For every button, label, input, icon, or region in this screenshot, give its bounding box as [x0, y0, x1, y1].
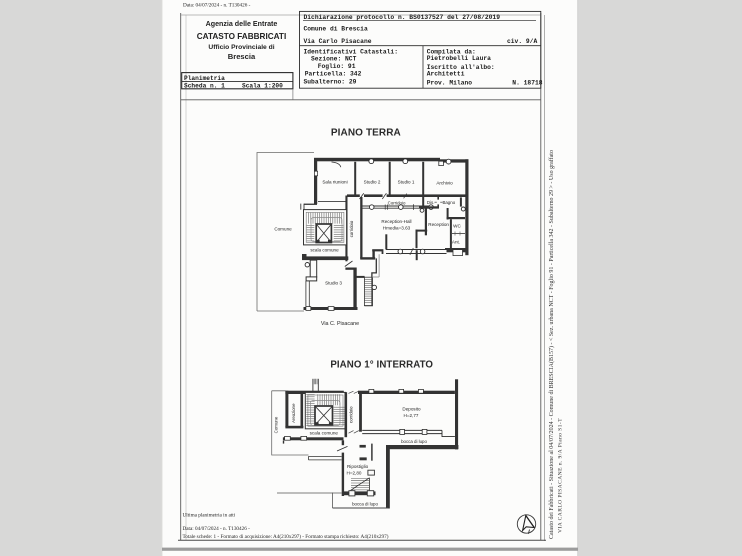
- svg-text:bocca di lupo: bocca di lupo: [401, 439, 427, 444]
- svg-text:CATASTO FABBRICATI: CATASTO FABBRICATI: [197, 32, 286, 41]
- svg-text:Ufficio Provinciale di: Ufficio Provinciale di: [208, 44, 274, 51]
- svg-text:Totale schede: 1 - Formato di: Totale schede: 1 - Formato di acquisizio…: [183, 533, 389, 540]
- svg-text:Ultima planimetria in atti: Ultima planimetria in atti: [183, 512, 236, 518]
- svg-text:Areazione: Areazione: [291, 403, 296, 423]
- svg-text:Reception-Hall: Reception-Hall: [381, 219, 411, 224]
- svg-text:N. 18718: N. 18718: [512, 80, 542, 87]
- svg-text:Dichiarazione protocollo n. BS: Dichiarazione protocollo n. BS0137527 de…: [304, 14, 501, 21]
- svg-text:Bagno: Bagno: [442, 200, 455, 205]
- svg-text:Foglio: 91: Foglio: 91: [318, 63, 356, 70]
- svg-text:corridoio: corridoio: [349, 406, 354, 423]
- svg-text:PIANO TERRA: PIANO TERRA: [331, 127, 401, 138]
- svg-text:VIA CARLO PISACANE n. 9/A Pian: VIA CARLO PISACANE n. 9/A Piano S1-T: [558, 418, 564, 533]
- svg-text:civ. 9/A: civ. 9/A: [507, 38, 537, 45]
- svg-text:Dis.: Dis.: [427, 200, 435, 205]
- svg-text:H=2,80: H=2,80: [347, 471, 362, 476]
- svg-text:Comune: Comune: [274, 416, 279, 433]
- svg-text:WC: WC: [453, 224, 461, 229]
- svg-text:Ant.: Ant.: [452, 240, 460, 245]
- svg-text:Studio 3: Studio 3: [325, 280, 342, 285]
- svg-text:Hmedia=3.63: Hmedia=3.63: [383, 225, 411, 230]
- svg-text:Sala riunioni: Sala riunioni: [322, 179, 347, 184]
- svg-text:Studio 1: Studio 1: [398, 179, 415, 184]
- svg-text:Comune di Brescia: Comune di Brescia: [304, 26, 368, 33]
- svg-text:scala comune: scala comune: [310, 430, 339, 435]
- svg-text:Via C. Pisacane: Via C. Pisacane: [321, 321, 359, 327]
- svg-text:Data: 04/07/2024 - n. T130426: Data: 04/07/2024 - n. T130426 -: [183, 3, 251, 9]
- svg-text:Sezione: NCT: Sezione: NCT: [311, 56, 357, 63]
- svg-text:Comune: Comune: [274, 226, 292, 231]
- svg-text:Archivio: Archivio: [436, 180, 453, 185]
- svg-text:H=2,77: H=2,77: [404, 413, 419, 418]
- svg-text:PIANO 1° INTERRATO: PIANO 1° INTERRATO: [330, 360, 433, 371]
- svg-text:Reception: Reception: [428, 222, 449, 227]
- svg-text:Deposito: Deposito: [402, 407, 421, 412]
- svg-text:Planimetria: Planimetria: [184, 75, 225, 82]
- svg-text:Brescia: Brescia: [228, 52, 256, 61]
- svg-text:Corridoio: Corridoio: [388, 200, 406, 205]
- svg-text:Agenzia delle Entrate: Agenzia delle Entrate: [206, 20, 278, 28]
- svg-text:Data: 04/07/2024 - n. T130426: Data: 04/07/2024 - n. T130426 -: [183, 526, 251, 532]
- svg-text:Particella: 342: Particella: 342: [305, 71, 362, 78]
- svg-text:Catasto dei Fabbricati - Situa: Catasto dei Fabbricati - Situazione al 0…: [548, 150, 555, 539]
- svg-text:Prov. Milano: Prov. Milano: [427, 80, 473, 87]
- svg-text:corridoio: corridoio: [349, 220, 354, 237]
- svg-text:Via Carlo Pisacane: Via Carlo Pisacane: [304, 38, 372, 45]
- svg-text:Scheda n. 1: Scheda n. 1: [184, 83, 225, 90]
- svg-text:scala comune: scala comune: [310, 248, 339, 253]
- svg-text:Pietrobelli Laura: Pietrobelli Laura: [427, 55, 491, 62]
- svg-text:Subalterno: 29: Subalterno: 29: [304, 79, 357, 86]
- svg-text:Studio 2: Studio 2: [364, 179, 381, 184]
- svg-text:Architetti: Architetti: [427, 70, 465, 77]
- svg-text:Identificativi Catastali:: Identificativi Catastali:: [304, 48, 398, 55]
- svg-text:Ripostiglio: Ripostiglio: [347, 464, 369, 469]
- svg-text:Scala 1:200: Scala 1:200: [242, 83, 283, 90]
- svg-text:bocca di lupo: bocca di lupo: [352, 501, 378, 506]
